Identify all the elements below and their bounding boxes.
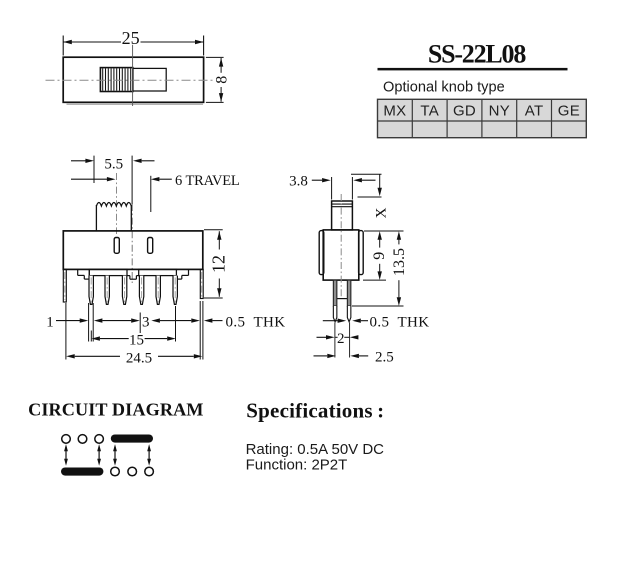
svg-text:1: 1: [46, 314, 54, 330]
svg-text:8: 8: [213, 76, 230, 84]
svg-text:15: 15: [129, 333, 144, 349]
svg-text:9: 9: [371, 252, 388, 260]
svg-text:NY: NY: [489, 103, 510, 120]
svg-text:3: 3: [142, 314, 150, 330]
svg-text:2.5: 2.5: [375, 350, 394, 366]
svg-text:13.5: 13.5: [391, 248, 408, 276]
svg-text:0.5 THK: 0.5 THK: [226, 314, 286, 330]
svg-text:Rating: 0.5A 50V DC: Rating: 0.5A 50V DC: [246, 441, 385, 458]
svg-text:Function: 2P2T: Function: 2P2T: [246, 457, 348, 474]
svg-text:5.5: 5.5: [104, 156, 123, 172]
svg-text:CIRCUIT DIAGRAM: CIRCUIT DIAGRAM: [28, 400, 203, 420]
svg-text:25: 25: [122, 28, 140, 48]
svg-text:Optional knob type: Optional knob type: [383, 80, 505, 96]
svg-text:6 TRAVEL: 6 TRAVEL: [175, 173, 240, 189]
svg-text:3.8: 3.8: [289, 174, 308, 190]
svg-text:GE: GE: [558, 103, 580, 120]
svg-text:TA: TA: [420, 103, 439, 120]
svg-text:X: X: [374, 207, 390, 218]
svg-text:0.5 THK: 0.5 THK: [370, 315, 430, 331]
svg-text:2: 2: [337, 331, 345, 347]
svg-text:GD: GD: [453, 103, 476, 120]
svg-text:Specifications :: Specifications :: [246, 399, 384, 423]
svg-text:MX: MX: [383, 103, 406, 120]
svg-text:24.5: 24.5: [126, 351, 152, 367]
svg-text:AT: AT: [525, 103, 544, 120]
svg-text:12: 12: [209, 255, 229, 273]
svg-text:SS-22L08: SS-22L08: [428, 40, 527, 69]
